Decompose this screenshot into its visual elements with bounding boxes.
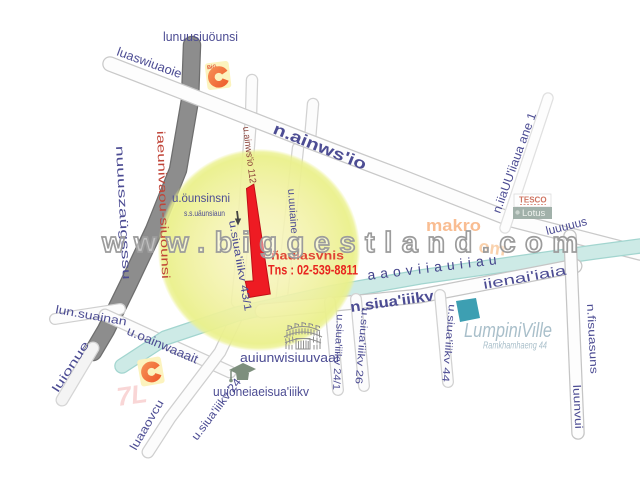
svg-text:luunvui: luunvui bbox=[570, 385, 584, 430]
svg-text:TESCO: TESCO bbox=[519, 196, 547, 205]
svg-text:LumpiniVille: LumpiniVille bbox=[464, 320, 552, 342]
svg-text:s.s.uäunsiaun: s.s.uäunsiaun bbox=[184, 208, 225, 218]
svg-text:Tns : 02-539-8811: Tns : 02-539-8811 bbox=[268, 263, 358, 278]
svg-text:auiunwisiuuvaai: auiunwisiuuvaai bbox=[240, 351, 339, 365]
svg-text:ñaulasvnis: ñaulasvnis bbox=[271, 249, 344, 263]
svg-text:7L: 7L bbox=[115, 378, 149, 412]
svg-text:Lotus: Lotus bbox=[522, 208, 545, 219]
svg-text:Ramkhamhaeng 44: Ramkhamhaeng 44 bbox=[483, 341, 547, 352]
svg-text:u.öunsinsni: u.öunsinsni bbox=[172, 193, 230, 205]
svg-text:lunuusiuöunsi: lunuusiuöunsi bbox=[163, 30, 238, 44]
svg-text:www.biggestland.com: www.biggestland.com bbox=[101, 227, 578, 259]
